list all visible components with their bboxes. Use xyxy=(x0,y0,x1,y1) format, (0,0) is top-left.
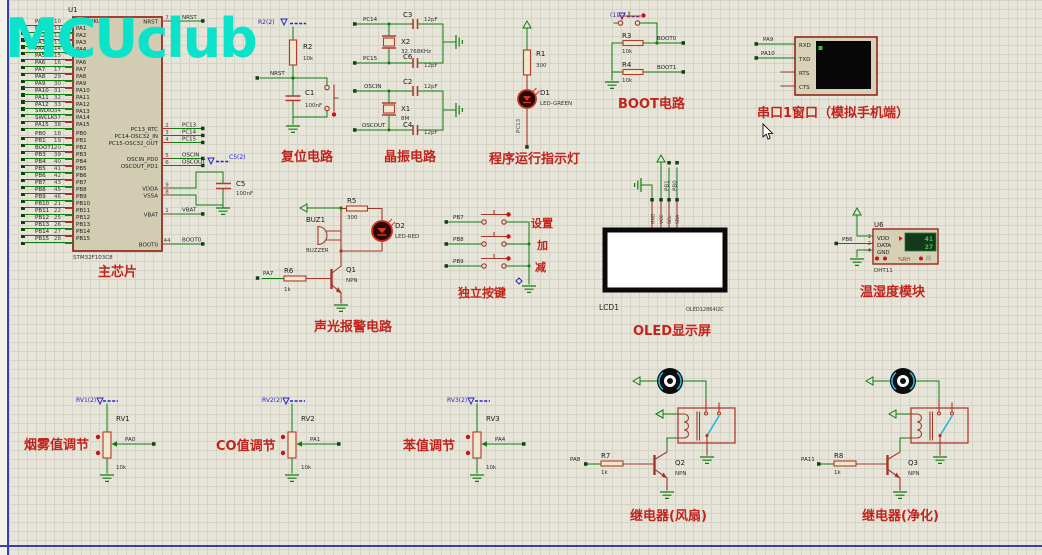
pin-name: PB14 xyxy=(76,229,148,236)
pin-number: 30 xyxy=(54,82,61,88)
pin-name: PB12 xyxy=(76,215,148,222)
power-arrow-icon xyxy=(866,377,873,385)
caption: 独立按键 xyxy=(457,285,506,300)
resistor-ref: R4 xyxy=(622,61,632,69)
npn-transistor-icon xyxy=(623,452,668,490)
fan-motor-icon xyxy=(890,368,916,394)
net-label: NRST xyxy=(182,15,197,21)
net-label: BOOT1 xyxy=(35,146,54,152)
resistor-icon xyxy=(834,461,856,466)
resistor-ref: R7 xyxy=(601,452,610,460)
pin-name: SCL xyxy=(667,215,673,224)
adjust-dot[interactable] xyxy=(875,257,879,261)
pin-number: 15 xyxy=(54,54,61,60)
pin-name: PA4 xyxy=(76,47,148,54)
button-actuator-dot[interactable] xyxy=(506,212,510,216)
pin-name: PA10 xyxy=(76,88,148,95)
led-icon xyxy=(518,88,540,108)
chip-pin-row: PB10 21 xyxy=(24,201,73,208)
ground-icon xyxy=(456,35,462,117)
net-label: PA9 xyxy=(763,37,774,43)
npn-transistor-icon xyxy=(856,452,901,490)
chip-pin-row: PB7 43 xyxy=(24,180,73,187)
dht-value-top: 41 xyxy=(925,236,933,243)
button-actuator-dot[interactable] xyxy=(641,13,645,17)
sheet-border-left xyxy=(7,0,9,555)
power-label: (1) xyxy=(610,12,619,19)
pin-number: 10 xyxy=(54,20,61,26)
net-label: PA10 xyxy=(35,89,49,95)
ground-icon xyxy=(470,475,484,481)
pin-name: PB15 xyxy=(76,236,148,243)
relay-icon xyxy=(678,400,735,455)
key-function-label: 加 xyxy=(536,238,548,252)
pin-number: 18 xyxy=(54,132,61,138)
pin-number: 44 xyxy=(164,238,171,244)
pin-name: PB8 xyxy=(76,187,148,194)
chip-pin-row: PB1 19 xyxy=(24,138,73,145)
chip-right-wires xyxy=(172,21,223,244)
chip-pin-row: PA0 10 xyxy=(24,19,73,26)
net-label: PA11 xyxy=(801,457,815,463)
ground-icon xyxy=(660,492,674,498)
net-label: PB12 xyxy=(35,216,49,222)
ground-icon xyxy=(100,475,114,481)
chip-ref: U1 xyxy=(68,6,78,14)
chip-pin-row: PB9 46 xyxy=(24,194,73,201)
pin-number: 26 xyxy=(54,223,61,229)
chip-pin-row: PB4 40 xyxy=(24,159,73,166)
pot-adjust-dot[interactable] xyxy=(466,451,470,455)
pin-name: VCC xyxy=(659,215,665,224)
pot-benzene: RV3(2) PA4 RV3 10k 苯值调节 xyxy=(402,397,526,481)
oled-block: PB1 PB0 GND VCC SCL SDA LCD1 OLED12864I2… xyxy=(599,155,725,339)
net-label: PA8 xyxy=(570,457,581,463)
pot-adjust-dot[interactable] xyxy=(466,435,470,439)
pin-name: CTS xyxy=(799,85,810,91)
pot-ref: RV2 xyxy=(301,415,315,423)
pot-ref: RV1 xyxy=(116,415,130,423)
chip-pin-row: BOOT1 20 xyxy=(24,145,73,152)
net-label: PB1 xyxy=(35,139,46,145)
pin-number: 3 xyxy=(165,130,169,136)
net-label: PA4 xyxy=(35,47,45,53)
pin-name: PA7 xyxy=(76,67,148,74)
net-label: SWCLK xyxy=(35,116,54,122)
resistor-ref: R6 xyxy=(284,267,294,275)
pin-number: 32 xyxy=(54,96,61,102)
net-label: PA10 xyxy=(761,51,775,57)
cap-value: 12pF xyxy=(424,130,438,136)
pin-number: 1 xyxy=(868,234,872,240)
dht-unit: %RH xyxy=(898,257,910,263)
schematic-graphics: U1 STM32F103C8 NRST 7 NRST PC13_RTC 2 PC… xyxy=(0,0,1042,555)
caption: 继电器(净化) xyxy=(862,508,939,524)
cap-ref: C2 xyxy=(403,78,412,86)
resistor-value: 1k xyxy=(284,287,291,293)
power-label: RV2(2) xyxy=(262,397,282,404)
sheet-margin xyxy=(0,0,7,555)
resistor-value: 1k xyxy=(834,470,841,476)
net-label: PB6 xyxy=(842,237,853,243)
pin-name: PB2 xyxy=(76,145,148,152)
pin-number: 2 xyxy=(868,241,872,247)
pin-number: 43 xyxy=(54,181,61,187)
sheet-border-bottom xyxy=(0,545,1042,547)
chip-pin-row: PA4 14 xyxy=(24,47,73,54)
pin-number: 2 xyxy=(165,123,169,129)
ground-icon xyxy=(605,82,619,88)
pin-name: PB11 xyxy=(76,208,148,215)
key-function-label: 设置 xyxy=(531,216,553,230)
pin-number: 42 xyxy=(54,174,61,180)
power-label: R2(2) xyxy=(258,19,275,26)
chip-pin-row: PA5 15 xyxy=(24,53,73,60)
net-label: PB9 xyxy=(35,195,46,201)
oled-screen[interactable] xyxy=(605,230,725,290)
pin-number: 7 xyxy=(165,16,169,22)
net-label: PC13 xyxy=(516,118,522,133)
pin-number: 9 xyxy=(165,183,169,189)
crystal-icon xyxy=(384,105,395,113)
chip-pin-row: PA10 31 xyxy=(24,88,73,95)
chip-pin-row: PB5 41 xyxy=(24,166,73,173)
resistor-ref: R5 xyxy=(347,197,356,205)
key-function-label: 减 xyxy=(535,260,546,274)
cap-ref: C5 xyxy=(236,180,245,188)
pin-number: 37 xyxy=(54,116,61,122)
crystal-icon xyxy=(384,38,395,46)
pin-number: 27 xyxy=(54,230,61,236)
pin-name: PA11 xyxy=(76,95,148,102)
net-label: SWDIO xyxy=(35,109,54,115)
power-arrow-icon xyxy=(656,410,663,418)
chip-pin-row: PB8 45 xyxy=(24,187,73,194)
ground-icon xyxy=(850,259,864,265)
pin-number: 11 xyxy=(54,27,61,33)
cap-value: 100nF xyxy=(236,191,253,197)
net-label: PB10 xyxy=(35,202,49,208)
net-label: OSCOUT xyxy=(362,123,386,129)
chip-pin-row: PB11 22 xyxy=(24,208,73,215)
led-ref: D1 xyxy=(540,89,550,97)
caption: 苯值调节 xyxy=(402,438,455,454)
transistor-ref: Q1 xyxy=(346,266,356,274)
net-label: PA12 xyxy=(35,103,49,109)
caption: 程序运行指示灯 xyxy=(489,151,580,167)
potentiometer-icon xyxy=(103,432,111,458)
resistor-value: 10k xyxy=(622,78,633,84)
power-pin-icon xyxy=(283,398,289,404)
button-actuator-dot[interactable] xyxy=(332,112,336,116)
pin-number: 25 xyxy=(54,216,61,222)
net-label: BOOT1 xyxy=(657,65,676,71)
button-actuator-dot[interactable] xyxy=(506,256,510,260)
power-label: RV1(2) xyxy=(76,397,96,404)
led-part: LED-RED xyxy=(395,234,419,240)
pin-number: 1 xyxy=(165,208,169,214)
chip-pin-row: PA1 11 xyxy=(24,26,73,33)
net-label: PA6 xyxy=(35,61,45,67)
net-label: PB7 xyxy=(453,215,464,221)
pot-value: 10k xyxy=(301,465,312,471)
power-arrow-icon xyxy=(300,204,307,212)
chip-inner-names-a: PA0-WKUPPA1PA2PA3PA4PA5PA6PA7PA8PA9PA10P… xyxy=(76,19,148,129)
pin-number: 4 xyxy=(165,137,169,143)
pin-name: PA13 xyxy=(76,109,148,116)
pin-number: 19 xyxy=(54,139,61,145)
resistor-ref: R3 xyxy=(622,32,631,40)
net-label: PC15 xyxy=(182,137,197,143)
caption: 主芯片 xyxy=(98,264,137,280)
transistor-part: NPN xyxy=(908,471,920,477)
pin-name: PA2 xyxy=(76,33,148,40)
pin-name: GND xyxy=(651,213,657,224)
chip-pin-row: PB13 26 xyxy=(24,222,73,229)
proteus-schematic: U1 STM32F103C8 NRST 7 NRST PC13_RTC 2 PC… xyxy=(0,0,1042,555)
ground-icon xyxy=(933,457,947,463)
chip-pin-row: PA15 38 xyxy=(24,122,73,129)
wiper-arrow-icon xyxy=(482,441,488,446)
pot-adjust-dot[interactable] xyxy=(281,435,285,439)
reset-circuit: R2(2) R2 10k NRST C1 100nF 复位电路 xyxy=(256,19,339,165)
alarm-circuit: R5 300 BUZ1 BUZZER D2 LED-RED Q1 NPN R6 … xyxy=(256,197,419,335)
dht-part: DHT11 xyxy=(874,268,893,274)
cap-value: 12pF xyxy=(424,84,438,90)
pin-number: 28 xyxy=(54,237,61,243)
net-label: PB4 xyxy=(35,160,46,166)
ground-icon xyxy=(216,208,230,214)
pin-name: RTS xyxy=(799,71,810,77)
chip-pin-row: PA9 30 xyxy=(24,81,73,88)
net-label: BOOT0 xyxy=(657,36,677,42)
pin-name: SDA xyxy=(675,214,681,224)
pin-name: PB1 xyxy=(76,138,148,145)
net-label: PA1 xyxy=(310,437,320,443)
chip-pin-row: PA2 12 xyxy=(24,33,73,40)
pin-name: PB4 xyxy=(76,159,148,166)
oled-ref: LCD1 xyxy=(599,303,619,312)
net-label: PA8 xyxy=(35,75,45,81)
pin-name: PB0 xyxy=(76,131,148,138)
pin-name: PA3 xyxy=(76,40,148,47)
pin-name: RXD xyxy=(799,43,811,49)
pin-name: PA0-WKUP xyxy=(76,19,148,26)
pin-number: 17 xyxy=(54,68,61,74)
pin-number: 14 xyxy=(54,47,61,53)
chip-pin-row: PB12 25 xyxy=(24,215,73,222)
led-ref: D2 xyxy=(395,222,405,230)
pin-name: PA6 xyxy=(76,60,148,67)
terminal-cursor xyxy=(819,46,823,50)
led-part: LED-GREEN xyxy=(540,101,572,107)
led-icon xyxy=(372,219,395,241)
chip-pin-row: PB6 42 xyxy=(24,173,73,180)
caption: OLED显示屏 xyxy=(633,324,711,339)
pin-name: PA8 xyxy=(76,74,148,81)
net-label: PA9 xyxy=(35,82,45,88)
dht11-block: PB6 U6 1 2 4 VDD DATA GND 41 27 %RH DHT1… xyxy=(835,208,939,300)
pin-name: PA14 xyxy=(76,115,148,122)
buzzer-icon xyxy=(318,227,327,245)
ground-icon xyxy=(522,286,536,292)
resistor-icon xyxy=(284,276,306,281)
pot-co: RV2(2) PA1 RV2 10k CO值调节 xyxy=(216,397,341,481)
net-label: PB15 xyxy=(35,237,49,243)
pin-number: 38 xyxy=(54,123,61,129)
net-label: PC14 xyxy=(363,17,378,23)
pin-number: 34 xyxy=(54,109,61,115)
ground-icon xyxy=(635,178,641,192)
net-label: PB8 xyxy=(35,188,46,194)
pin-name: VDD xyxy=(877,236,889,242)
pin-number: 12 xyxy=(54,34,61,40)
pin-name: PB5 xyxy=(76,166,148,173)
pin-name: PA12 xyxy=(76,102,148,109)
net-label: PA5 xyxy=(35,54,45,60)
pin-number: 39 xyxy=(54,153,61,159)
net-label: PB6 xyxy=(35,174,46,180)
power-pin-icon xyxy=(281,19,287,25)
net-label: PB11 xyxy=(35,209,49,215)
chip-part: STM32F103C8 xyxy=(73,255,113,261)
ground-icon xyxy=(700,457,714,463)
capacitor-icons xyxy=(413,19,418,135)
cap-ref: C6 xyxy=(403,53,413,61)
net-label: OSCOUT xyxy=(182,160,206,166)
power-arrow-icon xyxy=(657,155,665,162)
pin-name: PB13 xyxy=(76,222,148,229)
buzzer-ref: BUZ1 xyxy=(306,216,325,224)
caption: 继电器(风扇) xyxy=(630,508,707,524)
resistor-icon xyxy=(347,206,368,211)
dht-ref: U6 xyxy=(874,221,884,229)
net-label: PC15 xyxy=(363,56,378,62)
net-label: VBAT xyxy=(182,208,197,214)
pin-number: 16 xyxy=(54,61,61,67)
pin-number: 31 xyxy=(54,89,61,95)
pin-number: 41 xyxy=(54,167,61,173)
net-label: PA0 xyxy=(35,20,45,26)
cap-value: 12pF xyxy=(424,17,438,23)
power-arrow-icon xyxy=(523,21,531,28)
net-label: OSCIN xyxy=(364,84,381,90)
resistor-value: 300 xyxy=(536,63,547,69)
net-label: PA3 xyxy=(35,41,45,47)
potentiometer-icon xyxy=(473,432,481,458)
run-indicator-circuit: R1 300 D1 LED-GREEN PC13 程序运行指示灯 xyxy=(489,21,580,167)
resistor-value: 10k xyxy=(303,56,314,62)
net-label: PB8 xyxy=(453,237,464,243)
transistor-part: NPN xyxy=(346,278,358,284)
pin-number: 29 xyxy=(54,75,61,81)
pin-name: PB6 xyxy=(76,173,148,180)
boot-circuit: (1) R3 10k BOOT0 R4 10k BOOT1 BOOT电路 xyxy=(605,12,686,112)
caption: BOOT电路 xyxy=(618,96,686,112)
transistor-ref: Q2 xyxy=(675,459,685,467)
pin-name: GND xyxy=(877,250,890,256)
wiper-arrow-icon xyxy=(297,441,303,446)
pin-name: PB10 xyxy=(76,201,148,208)
pot-adjust-dot[interactable] xyxy=(96,435,100,439)
wiper-arrow-icon xyxy=(112,441,118,446)
cap-ref: C4 xyxy=(403,121,413,129)
power-label: C5(2) xyxy=(229,154,246,161)
net-label: PB5 xyxy=(35,167,46,173)
key-button-set[interactable] xyxy=(482,211,511,269)
net-label: PA7 xyxy=(35,68,45,74)
keys-block: PB7 PB8 PB9 设置 加 减 独立按键 xyxy=(445,211,554,301)
chip-pin-row: PB0 18 xyxy=(24,131,73,138)
relay-fan-block: R7 1k PA8 Q2 NPN 继电器(风扇) xyxy=(570,368,735,524)
resistor-value: 10k xyxy=(622,49,633,55)
power-label: RV3(2) xyxy=(447,397,467,404)
adjust-dot[interactable] xyxy=(883,257,887,261)
pin-number: 21 xyxy=(54,202,61,208)
fan-motor-icon xyxy=(657,368,683,394)
ground-icon xyxy=(893,492,907,498)
power-pin-icon xyxy=(468,398,474,404)
mouse-cursor xyxy=(763,124,773,139)
pin-number: 8 xyxy=(165,190,169,196)
resistor-icon xyxy=(290,40,297,65)
net-label: PA4 xyxy=(495,437,506,443)
resistor-ref: R1 xyxy=(536,50,545,58)
net-label: PA0 xyxy=(125,437,136,443)
net-label: OSCIN xyxy=(182,153,199,159)
ground-icon xyxy=(286,126,300,132)
pin-number: 40 xyxy=(54,160,61,166)
relay-icon xyxy=(911,400,968,455)
dht-value-bottom: 27 xyxy=(925,244,933,251)
pot-value: 10k xyxy=(116,465,127,471)
transistor-ref: Q3 xyxy=(908,459,918,467)
crystal-ref: X1 xyxy=(401,105,410,113)
caption: CO值调节 xyxy=(216,438,276,454)
resistor-icon xyxy=(623,41,643,46)
chip-pin-row: PA3 13 xyxy=(24,40,73,47)
adjust-dot[interactable] xyxy=(919,257,923,261)
net-label: PA11 xyxy=(35,96,49,102)
indicator-square xyxy=(926,256,931,261)
crystal-plates xyxy=(382,36,396,115)
caption: 声光报警电路 xyxy=(313,319,393,335)
pot-adjust-dot[interactable] xyxy=(96,451,100,455)
net-label: PC14 xyxy=(182,130,197,136)
net-label: BOOT0 xyxy=(182,238,202,244)
pin-number: 45 xyxy=(54,188,61,194)
pin-name: DATA xyxy=(877,243,891,249)
pin-number: 20 xyxy=(54,146,61,152)
button-actuator-dot[interactable] xyxy=(506,234,510,238)
net-label: PC13 xyxy=(182,123,197,129)
chip-pin-row: PB14 27 xyxy=(24,229,73,236)
pot-value: 10k xyxy=(486,465,497,471)
net-label: PB0 xyxy=(35,132,46,138)
cap-value: 12pF xyxy=(424,63,438,69)
pin-number: 6 xyxy=(165,160,169,166)
serial-terminal-block: PA9 PA10 RXD TXD RTS CTS 串口1窗口（模拟手机端） xyxy=(755,37,910,121)
pin-name: PA9 xyxy=(76,81,148,88)
pin-number: 4 xyxy=(868,248,872,254)
pot-ref: RV3 xyxy=(486,415,500,423)
pot-adjust-dot[interactable] xyxy=(281,451,285,455)
power-pin-icon xyxy=(208,158,214,164)
crystal-ref: X2 xyxy=(401,38,410,46)
cap-ref: C3 xyxy=(403,11,412,19)
net-label: PB0 xyxy=(673,180,679,191)
transistor-part: NPN xyxy=(675,471,687,477)
